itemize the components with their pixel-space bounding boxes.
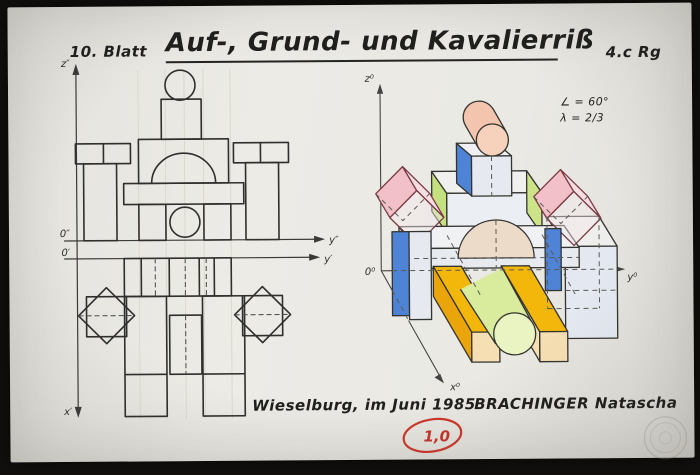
grade-value: 1,0	[423, 427, 450, 445]
axis-label-y1: y′	[323, 254, 333, 265]
axis-label-z2: z″	[60, 59, 70, 70]
axis-label-y2: y″	[328, 235, 339, 246]
plan-view-hidden-lines	[78, 257, 291, 374]
axis-label-x0: x⁰	[449, 382, 460, 393]
origin-label-front: 0″	[60, 229, 70, 240]
front-elevation-view	[75, 69, 289, 240]
axis-label-y0: y⁰	[626, 272, 637, 283]
axis-label-z0: z⁰	[364, 74, 374, 85]
left-blue-tower	[392, 231, 432, 319]
cavalier-projection-drawing: z⁰ y⁰ x⁰ 0⁰	[358, 58, 650, 410]
axis-label-x1: x′	[63, 407, 73, 418]
drawing-paper: Auf-, Grund- und Kavalierriß 10. Blatt 4…	[7, 3, 694, 463]
embossed-seal-icon	[636, 411, 696, 466]
photo-of-drawing-sheet: Auf-, Grund- und Kavalierriß 10. Blatt 4…	[0, 0, 700, 475]
plan-view	[78, 257, 291, 416]
orthographic-projection-drawing: z″ x′ y″ y′ 0″ 0′	[48, 50, 341, 427]
origin-label-0: 0⁰	[365, 267, 375, 278]
grade-mark: 1,0	[390, 410, 475, 463]
construction-guides	[138, 69, 232, 420]
origin-label-plan: 0′	[61, 248, 70, 259]
ortho-axis-labels: z″ x′ y″ y′ 0″ 0′	[59, 57, 341, 418]
